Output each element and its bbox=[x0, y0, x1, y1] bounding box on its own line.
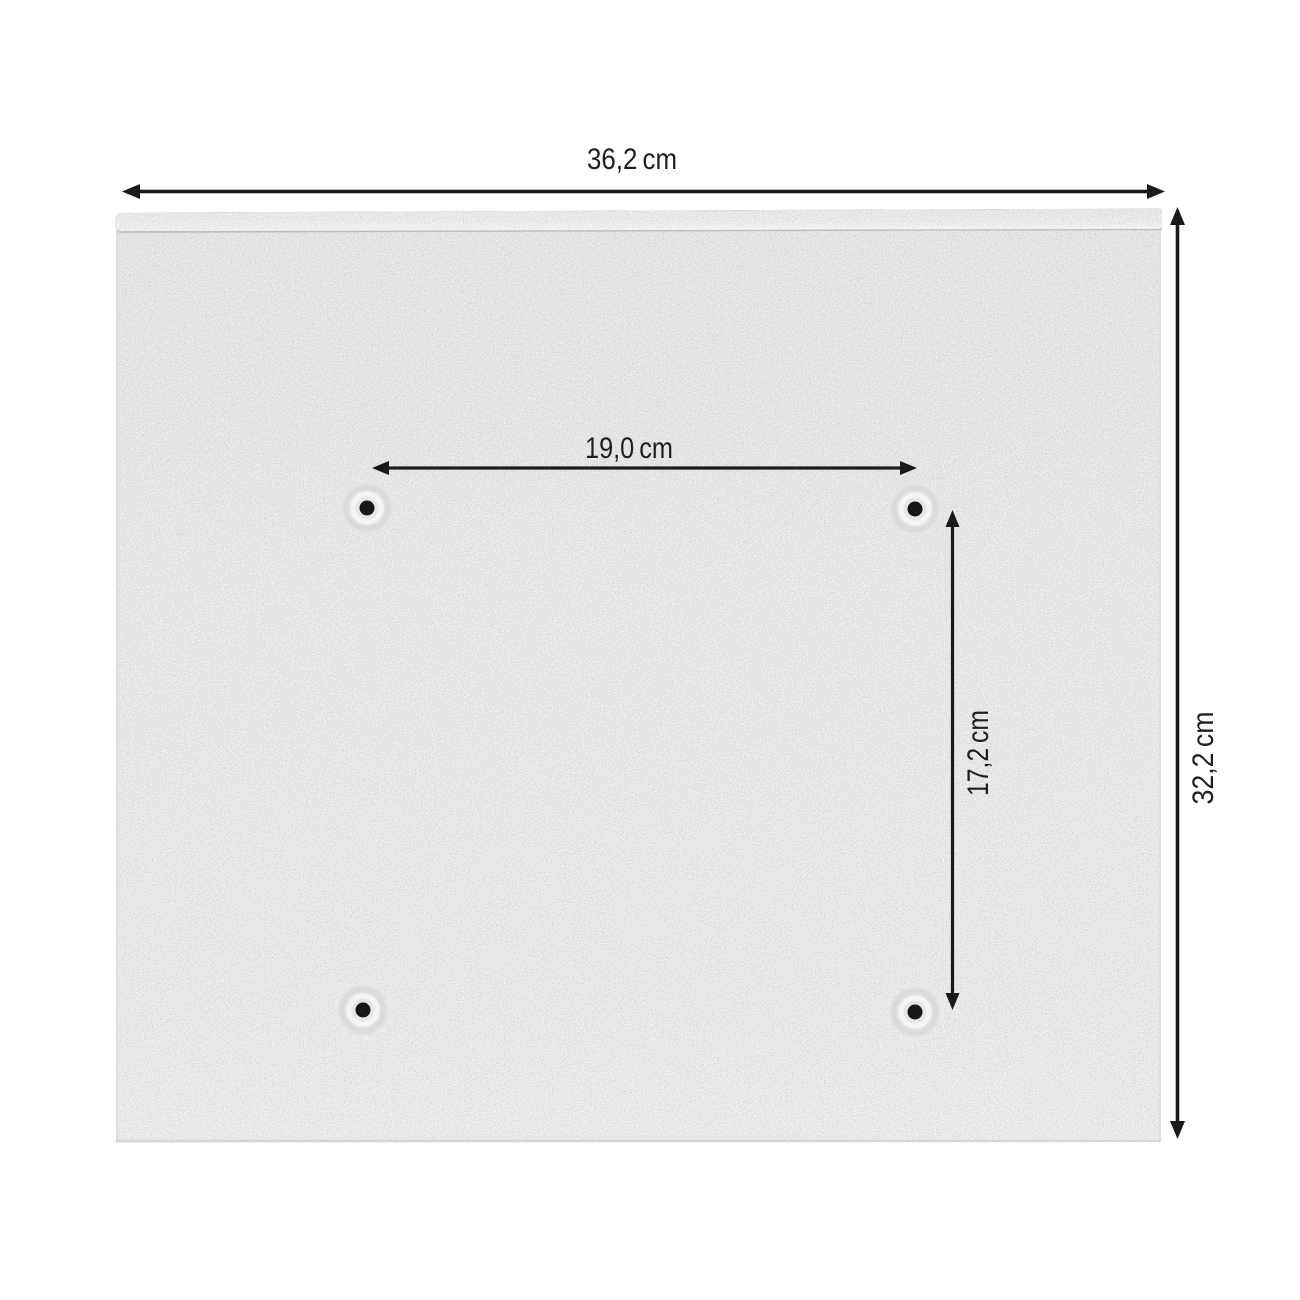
svg-text:32,2 cm: 32,2 cm bbox=[1187, 712, 1220, 805]
svg-text:17,2 cm: 17,2 cm bbox=[962, 710, 995, 796]
svg-text:19,0 cm: 19,0 cm bbox=[585, 432, 673, 465]
svg-text:36,2 cm: 36,2 cm bbox=[587, 143, 677, 176]
